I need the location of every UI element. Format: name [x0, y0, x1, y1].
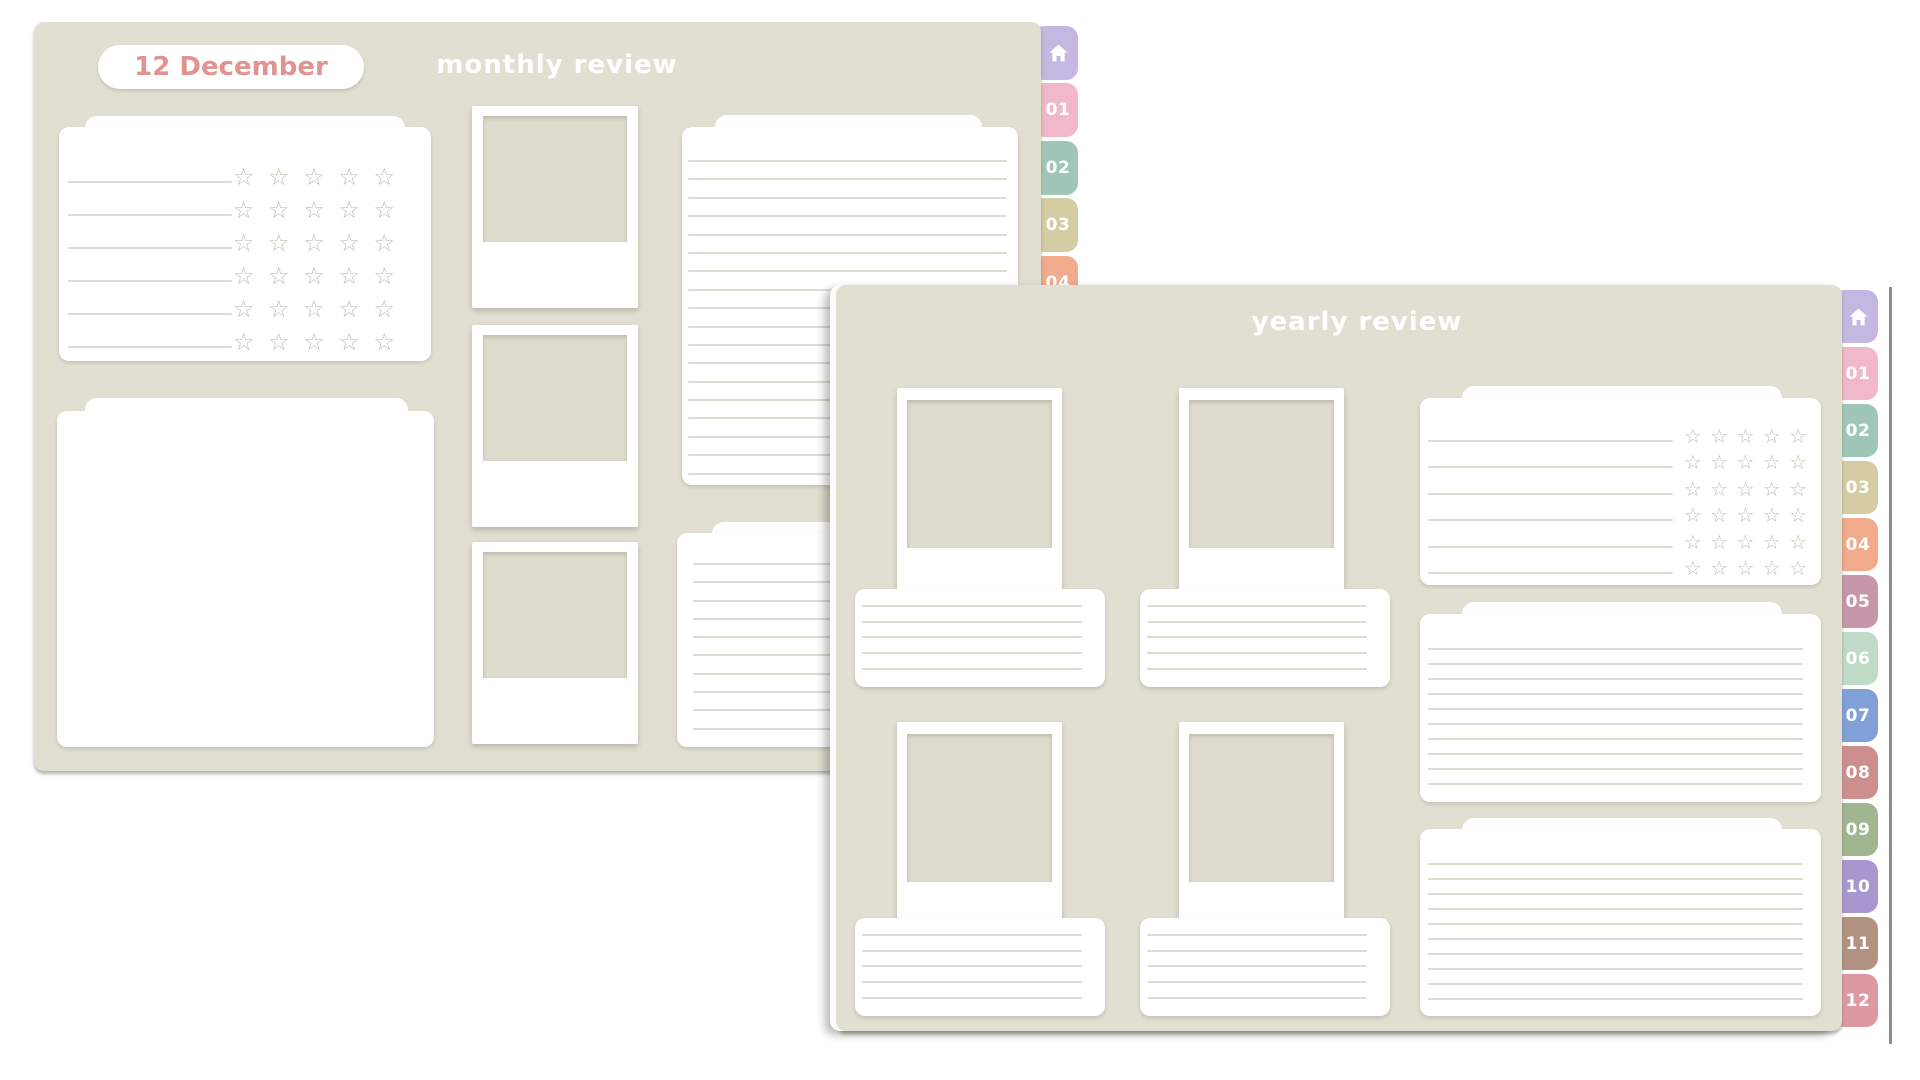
monthly-date-pill: 12 December [98, 45, 364, 89]
monthly-page-title: monthly review [414, 50, 700, 80]
rule-line [1428, 493, 1673, 495]
ruled-lines [862, 934, 1082, 1012]
yearly-photo-slot-4[interactable] [1179, 722, 1344, 927]
photo-placeholder [907, 734, 1052, 882]
photo-placeholder [1189, 734, 1334, 882]
monthly-date-label: 12 December [134, 52, 328, 82]
rating-row[interactable]: ☆ ☆ ☆ ☆ ☆ [68, 155, 398, 188]
rule-line [68, 280, 232, 282]
yearly-rating-grid[interactable]: ☆ ☆ ☆ ☆ ☆☆ ☆ ☆ ☆ ☆☆ ☆ ☆ ☆ ☆☆ ☆ ☆ ☆ ☆☆ ☆ … [1428, 420, 1808, 579]
photo-placeholder [483, 552, 627, 678]
rating-row[interactable]: ☆ ☆ ☆ ☆ ☆ [68, 254, 398, 287]
tab-label: 12 [1846, 991, 1871, 1011]
rule-line [1428, 863, 1803, 865]
rule-line [1428, 968, 1803, 970]
ruled-lines [1428, 863, 1803, 1013]
planner-spread: 01 02 03 04 12 December monthly review ☆… [0, 0, 1920, 1080]
monthly-photo-slot-3[interactable] [472, 542, 638, 744]
tab-label: 02 [1846, 421, 1871, 441]
rule-line [68, 247, 232, 249]
rule-line [1428, 546, 1673, 548]
home-icon [1848, 307, 1869, 327]
star-rating-icons[interactable]: ☆ ☆ ☆ ☆ ☆ [1684, 477, 1808, 501]
rule-line [1428, 753, 1803, 755]
ruled-lines [1428, 648, 1803, 798]
tab-label: 05 [1846, 592, 1871, 612]
yearly-caption-card-1[interactable] [855, 589, 1105, 687]
rule-line [688, 252, 1007, 254]
star-rating-icons[interactable]: ☆ ☆ ☆ ☆ ☆ [1684, 556, 1808, 580]
star-rating-icons[interactable]: ☆ ☆ ☆ ☆ ☆ [233, 262, 398, 290]
rule-line [1147, 605, 1367, 607]
star-rating-icons[interactable]: ☆ ☆ ☆ ☆ ☆ [1684, 503, 1808, 527]
rule-line [1428, 708, 1803, 710]
rule-line [1428, 893, 1803, 895]
tab-label: 03 [1846, 478, 1871, 498]
tab-label: 08 [1846, 763, 1871, 783]
rule-line [1428, 663, 1803, 665]
star-rating-icons[interactable]: ☆ ☆ ☆ ☆ ☆ [1684, 530, 1808, 554]
rule-line [1428, 878, 1803, 880]
monthly-rating-grid[interactable]: ☆ ☆ ☆ ☆ ☆☆ ☆ ☆ ☆ ☆☆ ☆ ☆ ☆ ☆☆ ☆ ☆ ☆ ☆☆ ☆ … [68, 155, 398, 353]
rule-line [68, 214, 232, 216]
rating-row[interactable]: ☆ ☆ ☆ ☆ ☆ [1428, 526, 1808, 553]
rule-line [688, 197, 1007, 199]
rating-row[interactable]: ☆ ☆ ☆ ☆ ☆ [68, 287, 398, 320]
rule-line [1428, 519, 1673, 521]
rule-line [1428, 440, 1673, 442]
rule-line [862, 997, 1082, 999]
home-icon [1048, 43, 1069, 63]
tab-label: 11 [1846, 934, 1871, 954]
rule-line [1428, 783, 1803, 785]
star-rating-icons[interactable]: ☆ ☆ ☆ ☆ ☆ [233, 229, 398, 257]
rating-row[interactable]: ☆ ☆ ☆ ☆ ☆ [68, 320, 398, 353]
rating-row[interactable]: ☆ ☆ ☆ ☆ ☆ [68, 221, 398, 254]
card-body: ☆ ☆ ☆ ☆ ☆☆ ☆ ☆ ☆ ☆☆ ☆ ☆ ☆ ☆☆ ☆ ☆ ☆ ☆☆ ☆ … [1420, 398, 1821, 585]
rating-row[interactable]: ☆ ☆ ☆ ☆ ☆ [1428, 473, 1808, 500]
rule-line [1147, 636, 1367, 638]
card-body[interactable] [57, 411, 434, 747]
rule-line [862, 934, 1082, 936]
rule-line [1428, 908, 1803, 910]
yearly-caption-card-3[interactable] [855, 918, 1105, 1016]
monthly-photo-slot-1[interactable] [472, 106, 638, 308]
rule-line [1147, 621, 1367, 623]
photo-placeholder [483, 116, 627, 242]
rating-row[interactable]: ☆ ☆ ☆ ☆ ☆ [1428, 420, 1808, 447]
tab-label: 01 [1046, 100, 1071, 120]
rule-line [1428, 923, 1803, 925]
star-rating-icons[interactable]: ☆ ☆ ☆ ☆ ☆ [233, 196, 398, 224]
star-rating-icons[interactable]: ☆ ☆ ☆ ☆ ☆ [233, 163, 398, 191]
star-rating-icons[interactable]: ☆ ☆ ☆ ☆ ☆ [233, 328, 398, 356]
page-edge-divider [1889, 287, 1892, 1044]
rating-row[interactable]: ☆ ☆ ☆ ☆ ☆ [68, 188, 398, 221]
rule-line [1428, 693, 1803, 695]
rule-line [1428, 466, 1673, 468]
tab-label: 07 [1846, 706, 1871, 726]
yearly-photo-slot-3[interactable] [897, 722, 1062, 927]
card-body[interactable] [1420, 614, 1821, 802]
rule-line [1147, 934, 1367, 936]
star-rating-icons[interactable]: ☆ ☆ ☆ ☆ ☆ [1684, 450, 1808, 474]
rule-line [68, 346, 232, 348]
rule-line [688, 215, 1007, 217]
card-body[interactable] [1420, 829, 1821, 1016]
yearly-caption-card-2[interactable] [1140, 589, 1390, 687]
rule-line [1428, 572, 1673, 574]
rule-line [862, 965, 1082, 967]
tab-label: 03 [1046, 215, 1071, 235]
rule-line [1147, 997, 1367, 999]
photo-placeholder [483, 335, 627, 461]
rule-line [1428, 738, 1803, 740]
yearly-review-page: yearly review ☆ ☆ ☆ ☆ ☆☆ ☆ ☆ ☆ ☆☆ ☆ ☆ ☆ … [836, 285, 1842, 1031]
photo-placeholder [907, 400, 1052, 548]
photo-placeholder [1189, 400, 1334, 548]
tab-label: 04 [1846, 535, 1871, 555]
yearly-notes-card-2[interactable] [1420, 818, 1821, 1016]
yearly-caption-card-4[interactable] [1140, 918, 1390, 1016]
monthly-rating-card: ☆ ☆ ☆ ☆ ☆☆ ☆ ☆ ☆ ☆☆ ☆ ☆ ☆ ☆☆ ☆ ☆ ☆ ☆☆ ☆ … [59, 116, 431, 361]
rule-line [1428, 953, 1803, 955]
tab-label: 02 [1046, 158, 1071, 178]
rule-line [862, 621, 1082, 623]
rule-line [1428, 998, 1803, 1000]
rule-line [1428, 678, 1803, 680]
card-body: ☆ ☆ ☆ ☆ ☆☆ ☆ ☆ ☆ ☆☆ ☆ ☆ ☆ ☆☆ ☆ ☆ ☆ ☆☆ ☆ … [59, 127, 431, 361]
rule-line [1147, 950, 1367, 952]
yearly-notes-card-1[interactable] [1420, 602, 1821, 802]
rule-line [688, 234, 1007, 236]
rule-line [1428, 723, 1803, 725]
monthly-blank-notes-card[interactable] [57, 398, 434, 747]
tab-label: 10 [1846, 877, 1871, 897]
rule-line [1147, 652, 1367, 654]
rule-line [862, 668, 1082, 670]
rule-line [688, 270, 1007, 272]
star-rating-icons[interactable]: ☆ ☆ ☆ ☆ ☆ [1684, 424, 1808, 448]
rule-line [1428, 938, 1803, 940]
rule-line [862, 652, 1082, 654]
rule-line [1428, 983, 1803, 985]
rule-line [862, 950, 1082, 952]
rule-line [1147, 668, 1367, 670]
star-rating-icons[interactable]: ☆ ☆ ☆ ☆ ☆ [233, 295, 398, 323]
yearly-page-title: yearly review [1214, 307, 1500, 337]
rule-line [1147, 981, 1367, 983]
ruled-lines [862, 605, 1082, 683]
yearly-rating-card: ☆ ☆ ☆ ☆ ☆☆ ☆ ☆ ☆ ☆☆ ☆ ☆ ☆ ☆☆ ☆ ☆ ☆ ☆☆ ☆ … [1420, 386, 1821, 585]
rule-line [862, 605, 1082, 607]
rule-line [1428, 768, 1803, 770]
rule-line [1147, 965, 1367, 967]
rule-line [1428, 648, 1803, 650]
tab-label: 01 [1846, 364, 1871, 384]
yearly-photo-slot-2[interactable] [1179, 388, 1344, 593]
monthly-photo-slot-2[interactable] [472, 325, 638, 527]
yearly-photo-slot-1[interactable] [897, 388, 1062, 593]
tab-label: 09 [1846, 820, 1871, 840]
rating-row[interactable]: ☆ ☆ ☆ ☆ ☆ [1428, 553, 1808, 580]
rule-line [688, 160, 1007, 162]
rule-line [688, 178, 1007, 180]
tab-label: 06 [1846, 649, 1871, 669]
rating-row[interactable]: ☆ ☆ ☆ ☆ ☆ [1428, 500, 1808, 527]
rule-line [862, 981, 1082, 983]
rule-line [68, 313, 232, 315]
rule-line [862, 636, 1082, 638]
rating-row[interactable]: ☆ ☆ ☆ ☆ ☆ [1428, 447, 1808, 474]
rule-line [68, 181, 232, 183]
ruled-lines [1147, 934, 1367, 1012]
ruled-lines [1147, 605, 1367, 683]
